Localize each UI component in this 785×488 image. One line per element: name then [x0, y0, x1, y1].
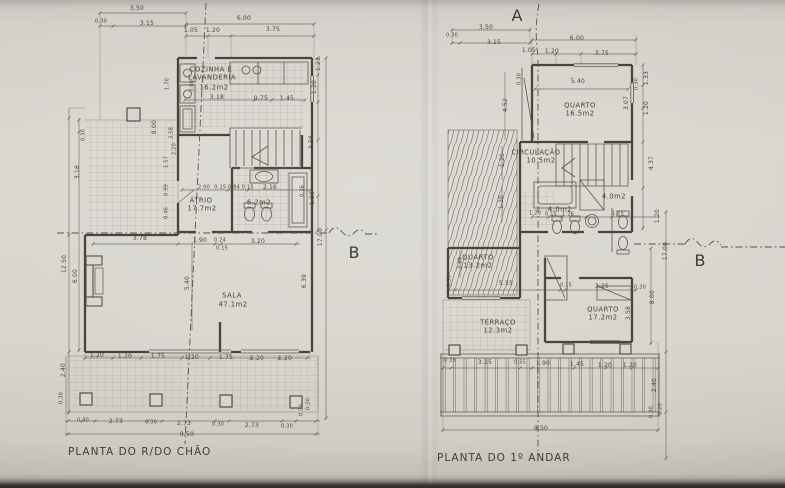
- ground-floor-plan: [57, 3, 377, 444]
- floor-plans-drawing: [0, 0, 785, 488]
- first-floor-plan: [440, 4, 785, 462]
- ground-floor-caption: PLANTA DO R/DO CHÃO: [68, 446, 211, 458]
- toilet-icon: [619, 216, 628, 229]
- tile-grid: [67, 357, 317, 411]
- tile-grid: [86, 121, 177, 232]
- table-edge-shadow: [0, 478, 785, 488]
- photographed-blueprint-sheet: 3.500.303.156.001.051.203.751.703.00COZI…: [0, 0, 785, 488]
- fireplace: [86, 256, 103, 306]
- tile-grid: [234, 170, 288, 230]
- roof-hatch: [448, 130, 517, 295]
- bidet-icon: [619, 237, 628, 250]
- stairs: [230, 128, 302, 168]
- sink-icon: [586, 215, 599, 228]
- first-floor-caption: PLANTA DO 1º ANDAR: [437, 452, 571, 464]
- pergola-slats: [442, 358, 658, 412]
- terrace-tile-grid: [444, 301, 529, 349]
